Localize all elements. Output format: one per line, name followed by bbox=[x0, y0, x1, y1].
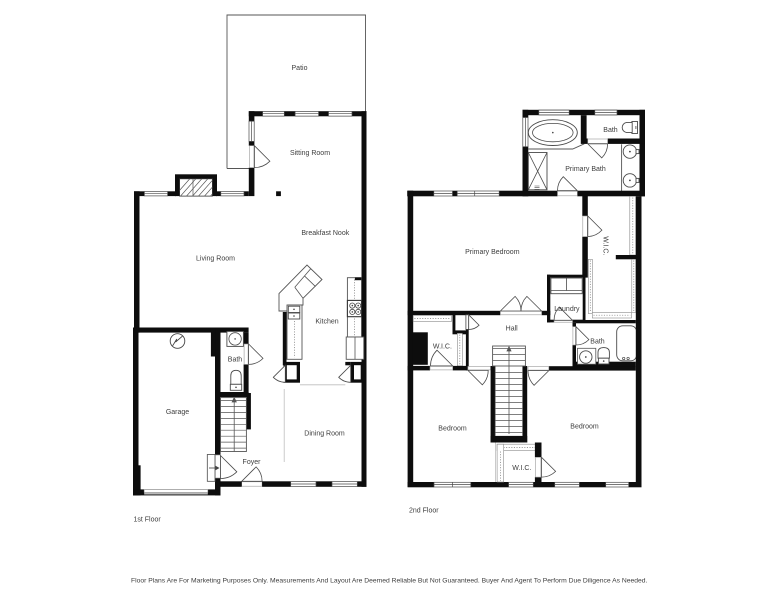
svg-text:Dining Room: Dining Room bbox=[304, 431, 345, 438]
svg-text:Floor Plans Are For Marketing: Floor Plans Are For Marketing Purposes O… bbox=[131, 578, 648, 585]
svg-text:W.I.C.: W.I.C. bbox=[512, 465, 531, 472]
svg-text:Foyer: Foyer bbox=[243, 459, 262, 466]
svg-text:Living Room: Living Room bbox=[196, 256, 235, 263]
svg-text:Bath: Bath bbox=[228, 357, 243, 364]
svg-text:2nd Floor: 2nd Floor bbox=[409, 508, 439, 515]
svg-text:Primary Bedroom: Primary Bedroom bbox=[465, 249, 520, 256]
svg-text:Garage: Garage bbox=[166, 409, 189, 416]
svg-text:Patio: Patio bbox=[292, 65, 308, 72]
svg-text:Breakfast Nook: Breakfast Nook bbox=[301, 230, 349, 237]
svg-text:W.I.C.: W.I.C. bbox=[601, 236, 608, 255]
svg-text:Sitting Room: Sitting Room bbox=[290, 150, 330, 157]
svg-text:Bath: Bath bbox=[590, 338, 605, 345]
svg-text:Bath: Bath bbox=[603, 127, 618, 134]
svg-text:Laundry: Laundry bbox=[554, 306, 580, 313]
svg-text:W.I.C.: W.I.C. bbox=[433, 343, 452, 350]
svg-text:Bedroom: Bedroom bbox=[570, 424, 599, 431]
svg-text:Hall: Hall bbox=[506, 326, 519, 333]
svg-text:Bedroom: Bedroom bbox=[438, 426, 467, 433]
svg-text:1st Floor: 1st Floor bbox=[134, 517, 162, 524]
svg-text:Kitchen: Kitchen bbox=[315, 319, 338, 326]
svg-text:Primary Bath: Primary Bath bbox=[565, 166, 606, 173]
